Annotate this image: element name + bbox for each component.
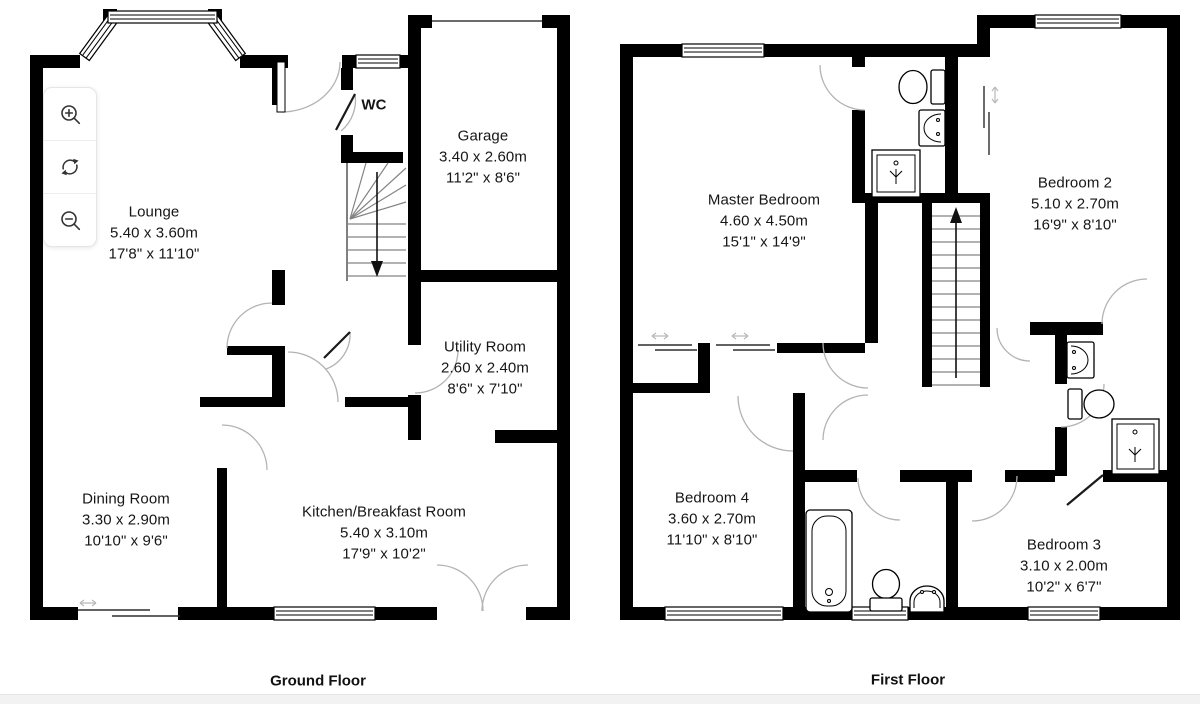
stairs-up [932,207,980,385]
room-size-imperial: 16'9" x 8'10" [1031,215,1119,236]
sliding-window [78,610,180,616]
zoom-out-button[interactable] [44,193,96,246]
room-size-imperial: 11'2" x 8'6" [439,168,527,189]
zoom-controls [43,87,97,247]
front-door-leaf [277,62,285,112]
front-door-arc [281,62,340,112]
wc-door-leaf [336,94,355,130]
magnifier-minus-icon [58,208,82,232]
room-name: Kitchen/Breakfast Room [302,502,466,523]
hall-door-arc [326,332,350,369]
magnifier-plus-icon [58,102,82,126]
room-size-metric: 3.60 x 2.70m [667,509,758,530]
stairs-up-arrow-icon [950,207,962,378]
ensuite2-door-leaf [1067,475,1103,505]
bedroom4-door-arc [738,396,793,451]
sh ower-fixture [1112,419,1159,474]
room-size-imperial: 10'10" x 9'6" [82,531,170,552]
sink-fixture [919,110,945,146]
room-name: Bedroom 4 [667,488,758,509]
kitchen-door-arc [288,352,338,402]
room-name: Lounge [109,202,200,223]
landing-door-arc-b [823,395,868,440]
room-label-bedroom-4: Bedroom 4 3.60 x 2.70m 11'10" x 8'10" [667,488,758,551]
room-size-metric: 5.40 x 3.10m [302,523,466,544]
bedroom3-door-arc [972,476,1017,521]
room-label-bedroom-2: Bedroom 2 5.10 x 2.70m 16'9" x 8'10" [1031,173,1119,236]
lounge-door-arc [227,303,272,348]
room-label-master-bedroom: Master Bedroom 4.60 x 4.50m 15'1" x 14'9… [708,190,820,253]
room-size-metric: 2.60 x 2.40m [441,358,529,379]
hall-door-leaf [324,332,350,358]
room-name: Utility Room [441,337,529,358]
resize-arrow-icon [80,600,96,606]
room-size-metric: 3.30 x 2.90m [82,510,170,531]
door-leaves [324,94,355,358]
room-label-bedroom-3: Bedroom 3 3.10 x 2.00m 10'2" x 6'7" [1020,535,1108,598]
bathtub-fixture [806,510,852,612]
room-size-imperial: 10'2" x 6'7" [1020,577,1108,598]
toilet-fixture [870,570,902,612]
footer-bar [0,694,1200,704]
room-label-dining-room: Dining Room 3.30 x 2.90m 10'10" x 9'6" [82,489,170,552]
ground-floor-caption: Ground Floor [270,673,366,690]
room-label-lounge: Lounge 5.40 x 3.60m 17'8" x 11'10" [109,202,200,265]
room-size-imperial: 15'1" x 14'9" [708,232,820,253]
room-size-imperial: 17'9" x 10'2" [302,544,466,565]
sink-fixture [1067,342,1094,378]
bathroom-door-arc [858,478,900,520]
room-size-metric: 5.40 x 3.60m [109,223,200,244]
room-label-kitchen: Kitchen/Breakfast Room 5.40 x 3.10m 17'9… [302,502,466,565]
room-label-wc: WC [361,95,386,116]
rotate-arrows-icon [58,155,82,179]
bedroom2-door-arc [1102,279,1147,324]
room-size-metric: 3.40 x 2.60m [439,147,527,168]
rotate-button[interactable] [44,140,96,193]
room-label-garage: Garage 3.40 x 2.60m 11'2" x 8'6" [439,126,527,189]
stairs-down [347,163,406,281]
room-size-metric: 5.10 x 2.70m [1031,194,1119,215]
shower-fixture [872,150,920,197]
zoom-in-button[interactable] [44,88,96,140]
floorplan-viewer: Lounge 5.40 x 3.60m 17'8" x 11'10" WC Ga… [0,0,1200,704]
sink-fixture [910,586,944,612]
room-name: Master Bedroom [708,190,820,211]
room-name: WC [361,95,386,116]
dining-door-arc [222,425,267,470]
toilet-fixture [1068,389,1114,419]
room-size-imperial: 17'8" x 11'10" [109,244,200,265]
floorplan-canvas [0,0,1200,704]
room-name: Bedroom 3 [1020,535,1108,556]
room-name: Dining Room [82,489,170,510]
room-size-metric: 4.60 x 4.50m [708,211,820,232]
room-size-metric: 3.10 x 2.00m [1020,556,1108,577]
room-name: Garage [439,126,527,147]
first-floor-caption: First Floor [871,672,945,689]
french-door-right-arc [482,565,528,611]
room-label-utility-room: Utility Room 2.60 x 2.40m 8'6" x 7'10" [441,337,529,400]
ensuite1-door-arc [820,65,865,110]
french-door-left-arc [437,565,483,611]
corridor-door-arc [997,328,1030,361]
room-size-imperial: 8'6" x 7'10" [441,379,529,400]
toilet-fixture [899,70,945,104]
room-name: Bedroom 2 [1031,173,1119,194]
room-size-imperial: 11'10" x 8'10" [667,530,758,551]
